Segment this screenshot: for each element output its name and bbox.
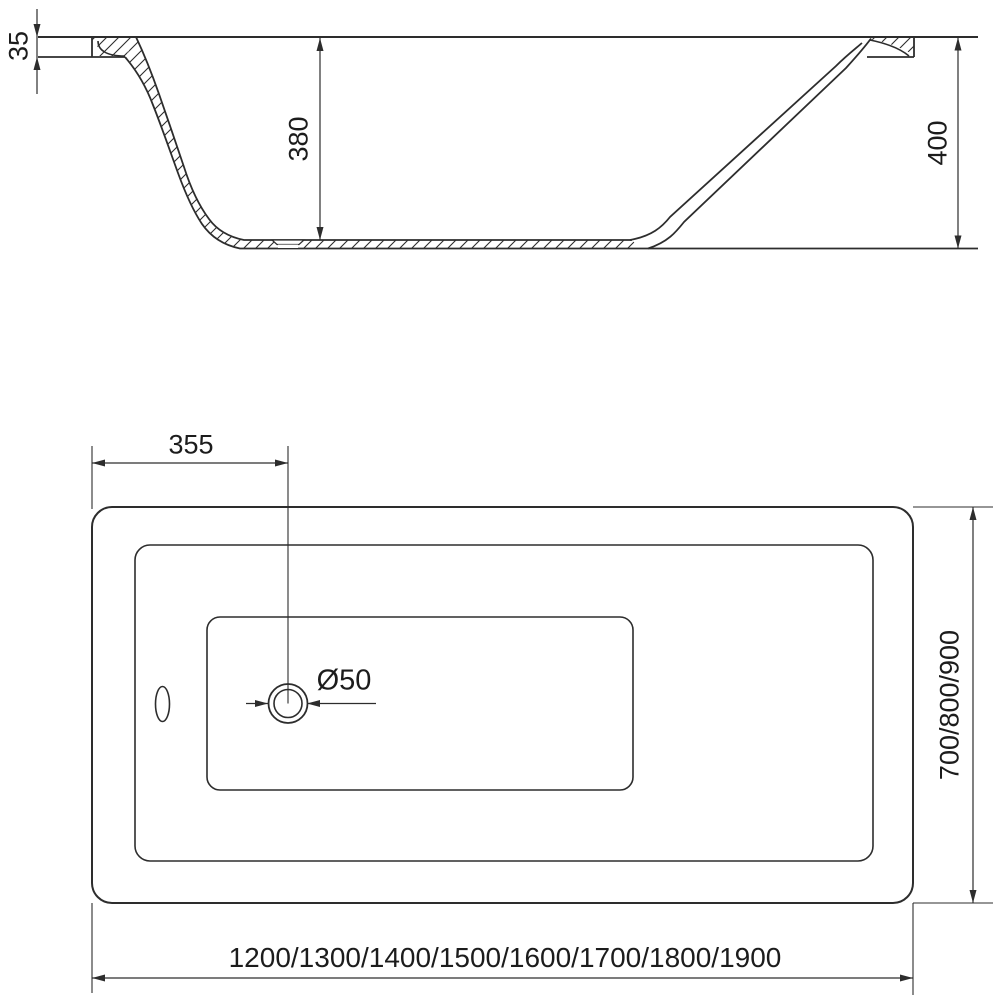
- dim-total-height: [955, 38, 962, 249]
- inner-depth-label: 380: [286, 116, 313, 161]
- width-options-label: 700/800/900: [937, 630, 964, 780]
- backrest-inner-line: [630, 43, 862, 240]
- wall-inner-line: [136, 37, 632, 240]
- technical-drawing-canvas: 35 380 400 355 Ø50 700/800/900 1200/1300…: [0, 0, 1000, 1000]
- drain-recess-mask: [278, 245, 298, 248]
- backrest-outer-line: [648, 39, 871, 249]
- dim-drain-diameter: [246, 700, 376, 707]
- length-options-label: 1200/1300/1400/1500/1600/1700/1800/1900: [229, 944, 782, 972]
- total-height-label: 400: [925, 120, 952, 165]
- dim-rim-thickness: [34, 9, 41, 94]
- inner-rim-outline: [135, 545, 873, 861]
- dim-drain-offset: [92, 460, 288, 467]
- drain-diameter-label: Ø50: [317, 667, 372, 696]
- tub-wall-floor-hatch: [125, 37, 640, 249]
- top-plan-view: [92, 446, 993, 995]
- overflow-hole: [156, 687, 170, 722]
- basin-floor-outline: [207, 617, 633, 790]
- side-section-view: [34, 9, 979, 249]
- wall-outer-line: [125, 57, 978, 249]
- drain-recess: [272, 240, 304, 245]
- rim-thickness-label: 35: [6, 31, 33, 61]
- drawing-svg: [0, 0, 1000, 1000]
- dim-inner-depth: [317, 38, 324, 240]
- drain-offset-label: 355: [168, 432, 213, 459]
- outer-rim-outline: [92, 507, 913, 903]
